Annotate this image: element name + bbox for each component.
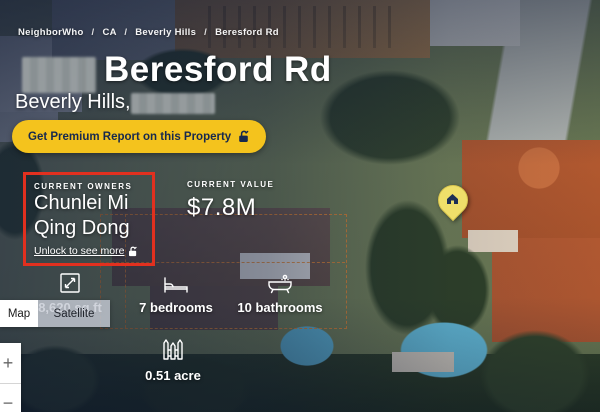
unlock-to-see-more-link[interactable]: Unlock to see more: [34, 245, 146, 257]
area-icon: [20, 268, 120, 294]
breadcrumb-item-site[interactable]: NeighborWho: [18, 27, 84, 38]
breadcrumb-separator: /: [92, 27, 95, 38]
house-pin-icon: [438, 185, 466, 213]
redacted-house-number: [22, 57, 96, 93]
stat-bathrooms: 10 bathrooms: [230, 268, 330, 315]
map-marker-pin[interactable]: [437, 184, 467, 228]
premium-button-label: Get Premium Report on this Property: [28, 131, 231, 143]
bath-icon: [230, 268, 330, 294]
current-value-label: CURRENT VALUE: [187, 180, 274, 189]
property-report-page: NeighborWho / CA / Beverly Hills / Beres…: [0, 0, 600, 412]
breadcrumb-item-city[interactable]: Beverly Hills: [135, 27, 196, 38]
breadcrumb-item-street: Beresford Rd: [215, 27, 279, 38]
stat-label: 10 bathrooms: [230, 300, 330, 315]
page-title-street: Beresford Rd: [104, 50, 332, 90]
current-owners-highlight-box: CURRENT OWNERS Chunlei Mi Qing Dong Unlo…: [23, 172, 155, 266]
bed-icon: [126, 268, 226, 294]
stat-label: 7 bedrooms: [126, 300, 226, 315]
zoom-in-button[interactable]: +: [0, 343, 21, 384]
owner-name: Chunlei Mi: [34, 191, 146, 216]
get-premium-report-button[interactable]: Get Premium Report on this Property: [12, 120, 266, 153]
unlock-icon: [238, 130, 250, 143]
map-zoom-control: + −: [0, 343, 21, 412]
fence-icon: [123, 336, 223, 362]
breadcrumb-separator: /: [124, 27, 127, 38]
unlock-icon: [128, 246, 138, 257]
zoom-out-button[interactable]: −: [0, 384, 21, 412]
stat-lot-size: 0.51 acre: [123, 336, 223, 383]
stat-label: 0.51 acre: [123, 368, 223, 383]
map-type-toggle: Map Satellite: [0, 300, 110, 327]
breadcrumb: NeighborWho / CA / Beverly Hills / Beres…: [18, 27, 279, 38]
map-view-button[interactable]: Map: [0, 300, 38, 327]
current-value-block: CURRENT VALUE $7.8M: [187, 180, 274, 222]
current-owners-label: CURRENT OWNERS: [34, 182, 146, 191]
city-line: Beverly Hills,: [15, 91, 131, 114]
breadcrumb-item-state[interactable]: CA: [102, 27, 116, 38]
breadcrumb-separator: /: [204, 27, 207, 38]
redacted-address-suffix: [131, 93, 215, 114]
satellite-view-button[interactable]: Satellite: [38, 300, 110, 327]
current-value-amount: $7.8M: [187, 194, 274, 222]
unlock-link-label: Unlock to see more: [34, 245, 124, 257]
stat-bedrooms: 7 bedrooms: [126, 268, 226, 315]
owner-name: Qing Dong: [34, 216, 146, 241]
